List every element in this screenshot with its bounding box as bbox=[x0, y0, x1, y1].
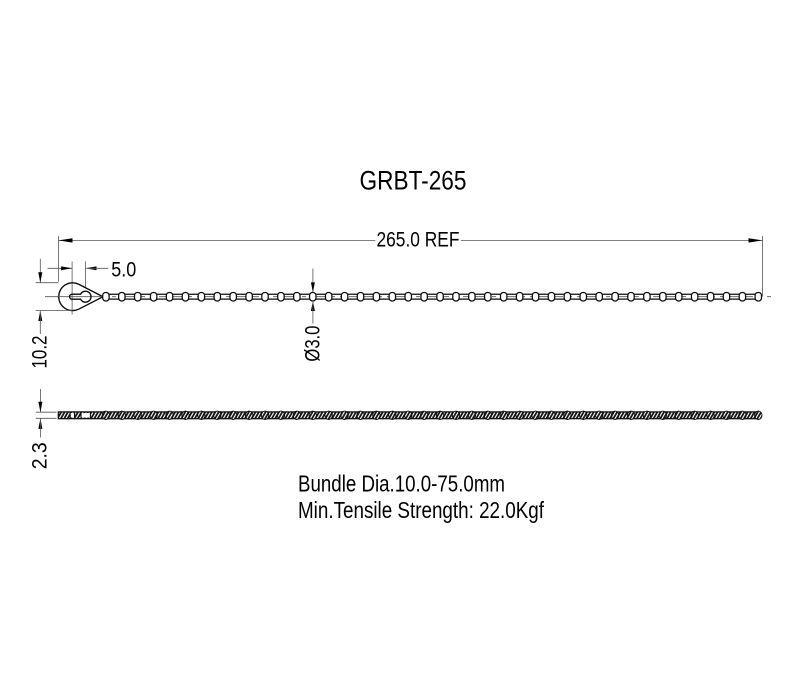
svg-text:10.2: 10.2 bbox=[28, 336, 51, 369]
svg-text:2.3: 2.3 bbox=[28, 442, 51, 469]
svg-text:GRBT-265: GRBT-265 bbox=[360, 166, 467, 196]
svg-text:Bundle Dia.10.0-75.0mm: Bundle Dia.10.0-75.0mm bbox=[298, 471, 505, 497]
svg-text:265.0 REF: 265.0 REF bbox=[377, 228, 460, 251]
svg-text:Ø3.0: Ø3.0 bbox=[302, 326, 325, 362]
svg-text:5.0: 5.0 bbox=[111, 258, 136, 281]
svg-text:Min.Tensile Strength: 22.0Kgf: Min.Tensile Strength: 22.0Kgf bbox=[298, 497, 544, 523]
